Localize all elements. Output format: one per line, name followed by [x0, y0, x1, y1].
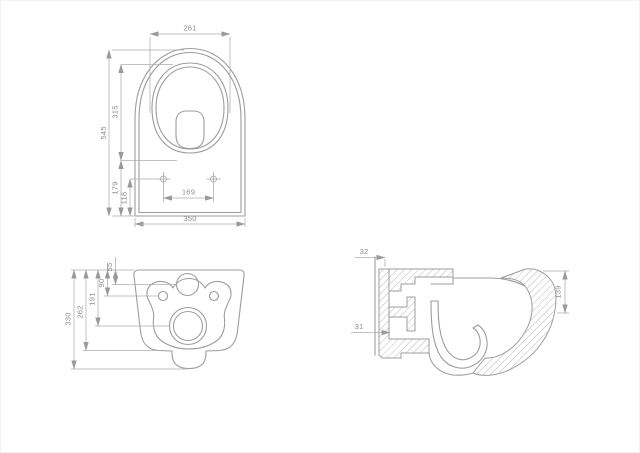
section-right-shell [473, 269, 556, 375]
svg-text:330: 330 [64, 312, 73, 325]
section-top-plate [389, 269, 453, 291]
svg-text:116: 116 [120, 192, 129, 205]
section-bottom-outline [429, 353, 473, 375]
section-middle-arm [389, 297, 415, 331]
svg-text:139: 139 [554, 285, 563, 298]
svg-text:55: 55 [105, 263, 114, 272]
dim-drain-center: 191 [88, 270, 99, 326]
dim-rear-overall-height: 330 [64, 270, 75, 369]
drawing-canvas: 261 545 315 179 116 [1, 1, 640, 453]
svg-text:32: 32 [360, 247, 369, 256]
side-section-view: 32 31 139 [351, 247, 569, 375]
svg-text:191: 191 [88, 292, 97, 305]
technical-drawing-page: 261 545 315 179 116 [0, 0, 640, 453]
svg-text:261: 261 [183, 24, 196, 33]
trap-inner-wall [438, 301, 480, 360]
svg-text:31: 31 [355, 322, 364, 331]
dim-rear-body-height: 262 [76, 270, 87, 351]
dim-inlet-center: 55 [105, 257, 116, 285]
svg-text:169: 169 [182, 188, 195, 197]
svg-text:179: 179 [111, 181, 120, 194]
svg-text:350: 350 [183, 214, 196, 223]
trap-wall-cap2 [473, 325, 478, 328]
svg-text:545: 545 [99, 126, 108, 139]
dim-wall-offset: 32 [355, 247, 385, 267]
back-view: 330 262 191 90 55 [64, 257, 245, 369]
dim-rear-depth: 179 [111, 161, 122, 217]
top-view: 261 545 315 179 116 [99, 24, 245, 228]
svg-text:262: 262 [76, 305, 85, 318]
svg-text:315: 315 [111, 105, 120, 118]
svg-text:90: 90 [97, 279, 106, 288]
